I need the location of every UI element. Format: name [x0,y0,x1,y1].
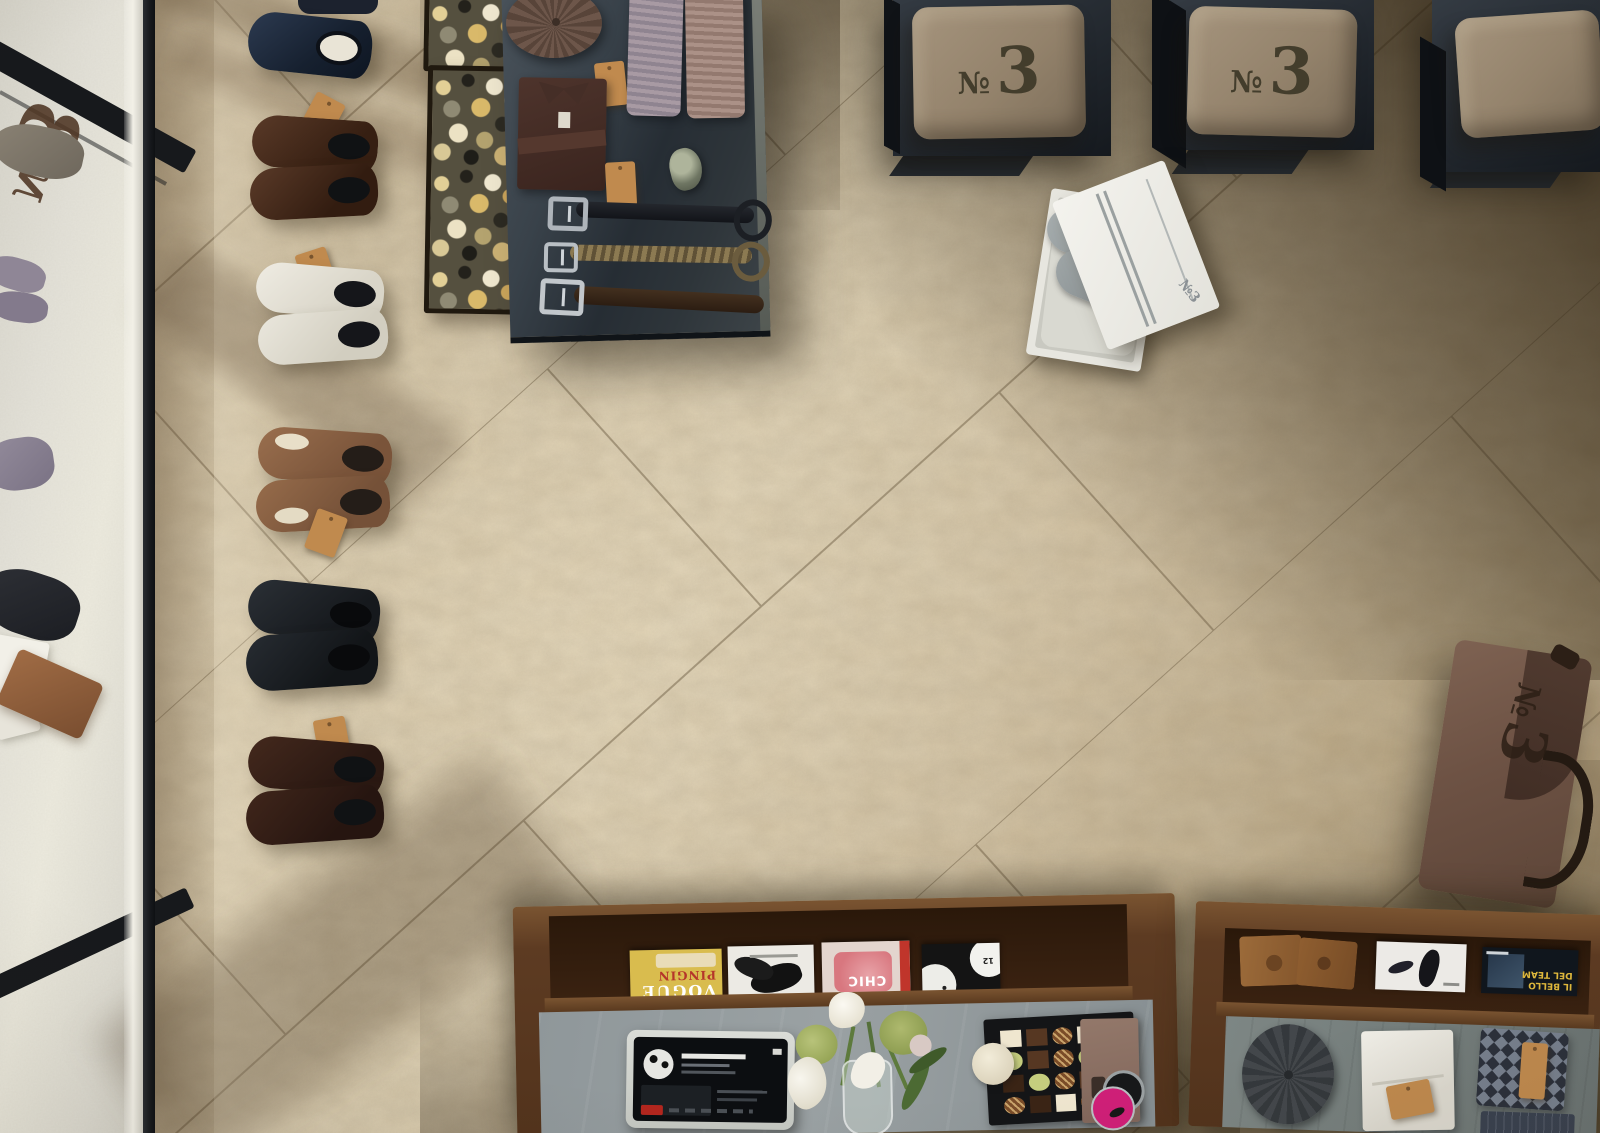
tan-sneaker-patch [274,432,309,450]
wooden-journal-2 [1296,937,1358,990]
tablet-text-line-2 [681,1070,735,1074]
shirt-collar-right [563,82,589,104]
lid-label: №3 [1175,277,1203,306]
tablet-logo-dot-1 [650,1055,658,1063]
bench-1-cushion-label: № 3 [912,39,1085,106]
tote-three: 3 [1488,715,1557,772]
chocolate [1029,1095,1051,1113]
shirt-fold [517,129,606,154]
bench-2-cushion-label: № 3 [1187,38,1357,106]
belt-snakeskin-loop [732,241,771,282]
shirt-label [558,112,570,128]
tan-sneaker-patch-2 [274,507,309,525]
tablet [626,1030,795,1130]
vogue-photo [656,952,716,967]
belt-black [547,192,766,236]
vogue-overline: PINGIN [636,968,716,982]
figure-caption [1443,983,1459,987]
shirt-collar-left [539,82,565,104]
glass-reflection-strip [124,0,144,1133]
white-tulip-1 [828,992,865,1029]
cushion-no: № [1230,65,1264,101]
brown-sneaker-2 [244,783,385,846]
magazine-chic: CHIC [821,941,910,999]
tablet-logo [643,1049,673,1079]
chocolate [1027,1050,1049,1068]
tablet-text-line-4 [717,1098,757,1102]
tablet-red-button [641,1105,663,1115]
brown-sneaker-opening-2 [333,798,377,827]
shop-overhead-photo: № 3 [0,0,1600,1133]
bench-1-cushion: № 3 [912,5,1086,140]
wooden-journal-1 [1239,935,1303,987]
chocolate [1055,1093,1077,1111]
black-sneaker-2 [244,627,380,692]
grey-cap-button [1284,1070,1293,1079]
navy-sneaker-insole [314,29,363,68]
lid-stripe-1 [1096,193,1150,327]
scarf-lavender [626,0,683,117]
folded-white-shirt [1361,1030,1455,1132]
figure-arm [1387,958,1415,976]
belt-snakeskin-buckle [544,242,579,273]
chocolate [1054,1071,1076,1089]
chic-spine-bar [899,941,910,997]
belt-snakeskin-strap [570,245,752,264]
scarf-rose [685,0,745,118]
flower-arrangement [785,994,964,1133]
chocolate [1004,1096,1026,1114]
black-sneaker-opening-1 [329,600,373,630]
figure-silhouette [1414,947,1443,989]
tan-sneaker-opening-2 [339,488,382,516]
black-sneaker-opening-2 [327,643,371,672]
cap-button [552,18,560,26]
belt-brown-strap [574,286,765,314]
bench-3-side [1420,36,1446,191]
cushion-no: № [957,66,990,102]
chocolate [1051,1027,1073,1045]
cushion-three: 3 [995,39,1041,104]
price-tag-scarf [1518,1042,1548,1100]
folded-brown-shirt [517,77,607,191]
brown-sneaker-opening-1 [333,755,377,785]
brogue-opening-2 [327,176,370,204]
brogue-opening-1 [327,132,371,161]
tablet-logo-dot-2 [661,1061,668,1068]
brogue-shoe-2 [249,163,380,222]
bench-2-side [1152,0,1186,169]
ilbello-line2: DEL TEAM [1522,968,1573,981]
magazine-figure [1375,941,1467,992]
bench-2-cushion: № 3 [1186,6,1357,138]
belt-snakeskin [544,236,767,276]
white-sneaker-opening-1 [333,279,377,309]
tablet-title-line [682,1053,746,1059]
chocolate [1026,1028,1048,1046]
chic-title: CHIC [847,972,886,988]
chocolate [1053,1049,1075,1067]
price-tag-shirt [1385,1079,1435,1121]
white-sneaker-2 [256,308,389,367]
glass-partition-frame [143,0,155,1133]
tin-brush-mark [1108,1105,1126,1119]
clock-numeral: 12 [983,956,994,965]
lid-stripe-2 [1103,191,1157,325]
chocolate [1028,1073,1050,1091]
tablet-text-line-3 [717,1090,767,1094]
fashion-caption [750,954,798,958]
navy-shoe-partial [298,0,378,14]
magazine-ilbello: IL BELLO DEL TEAM [1481,947,1579,996]
pinstripe-garment [1480,1111,1575,1133]
tablet-corner-chip [773,1049,782,1055]
tote-no: № [1502,679,1548,723]
bench-1-side [884,0,900,154]
magazine-table-left: VOGUE PINGIN CHIC 12 [513,893,1180,1133]
ilbello-photo [1487,953,1524,988]
belt-black-strap [576,201,754,223]
cushion-three: 3 [1268,40,1314,105]
bench-3-cushion [1454,9,1600,139]
white-sneaker-opening-2 [337,320,381,349]
belt-brown-buckle [539,278,585,316]
magazine-table-right: IL BELLO DEL TEAM [1188,901,1600,1133]
belt-black-buckle [547,196,588,231]
ilbello-line1: IL BELLO [1521,979,1572,992]
tan-sneaker-opening-1 [341,444,385,473]
tablet-screen [633,1037,788,1123]
tablet-text-line-1 [681,1063,729,1067]
